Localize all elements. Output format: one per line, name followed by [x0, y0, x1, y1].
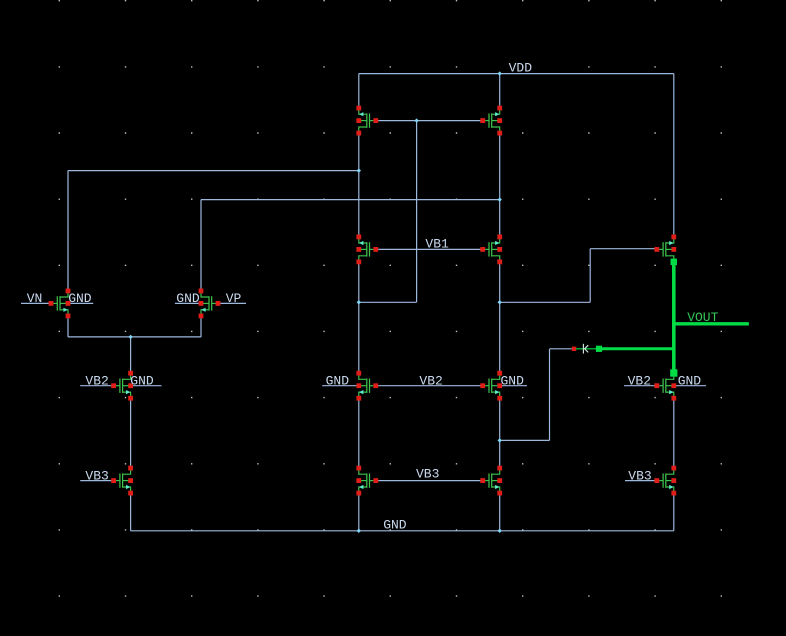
svg-text:GND: GND	[176, 291, 200, 306]
svg-text:GND: GND	[383, 517, 407, 532]
svg-text:GND: GND	[678, 374, 702, 389]
svg-text:VOUT: VOUT	[687, 310, 718, 325]
svg-text:VB2: VB2	[419, 374, 442, 389]
svg-text:GND: GND	[501, 374, 525, 389]
svg-text:VB3: VB3	[416, 466, 439, 481]
svg-text:VB3: VB3	[85, 468, 108, 483]
svg-text:GND: GND	[326, 374, 350, 389]
svg-text:GND: GND	[130, 374, 154, 389]
svg-text:GND: GND	[68, 291, 92, 306]
svg-text:VN: VN	[27, 291, 43, 306]
svg-text:VB2: VB2	[628, 374, 651, 389]
svg-text:VB3: VB3	[628, 468, 651, 483]
svg-text:VDD: VDD	[509, 61, 533, 76]
svg-text:VB2: VB2	[85, 374, 108, 389]
svg-text:VB1: VB1	[425, 237, 449, 252]
svg-text:VP: VP	[226, 291, 242, 306]
